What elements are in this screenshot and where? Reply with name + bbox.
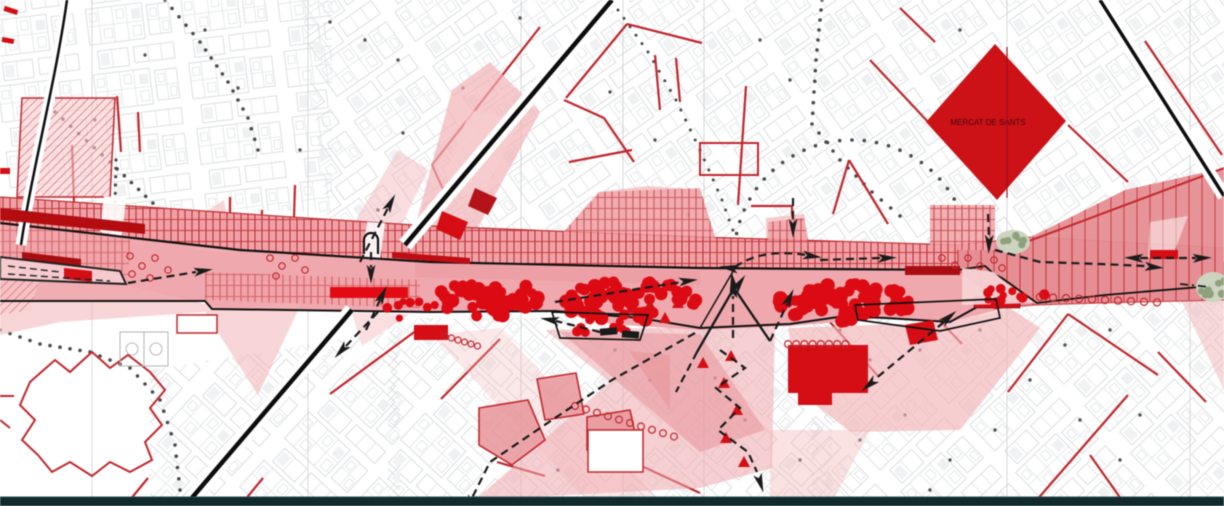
svg-text:MERCAT DE SANTS: MERCAT DE SANTS: [950, 118, 1025, 127]
